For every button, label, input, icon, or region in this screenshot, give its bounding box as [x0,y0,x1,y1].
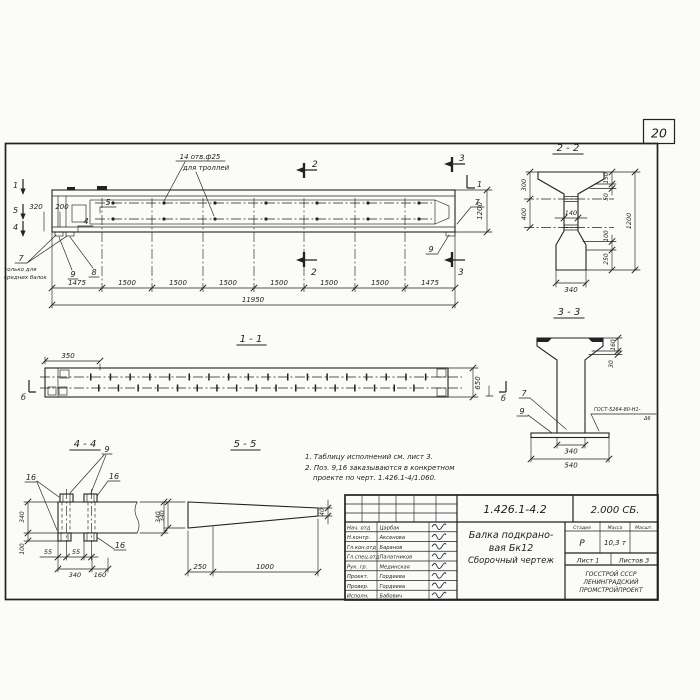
pos-label-16-a: 16 [26,473,36,482]
section-2-2: 2 - 2 300 400 140 150 50 100 250 1200 34… [520,143,640,294]
notes: 1. Таблицу исполнений см. лист 3. 2. Поз… [305,453,455,482]
dim-55-a: 55 [44,548,52,556]
name-7: Бабович [380,594,403,600]
section-1-1: 1 - 1 350 650 б б [21,334,506,403]
dim-55-b: 55 [72,548,80,556]
role-3: Гл.спец.отд [347,555,380,561]
dim-chain-2: 1500 [169,279,187,287]
dim-540-sec33: 540 [564,462,578,470]
pos-7-note-1: только для [4,267,37,273]
pos-label-16-b: 16 [109,472,119,481]
section-1-1-title: 1 - 1 [240,334,263,345]
dim-1200-sec22: 1200 [625,213,633,230]
titleblock-roles: Нач. отд Н.контр. Гл.кон.отд Гл.спец.отд… [347,525,380,599]
weld-spec-line-2: Δ6 [643,416,651,422]
role-5: Проект. [347,574,368,580]
detail-4-4-title: 4 - 4 [74,439,97,450]
view-marker-4-label: 4 [13,223,18,232]
scale-header: Масшт. [635,525,653,531]
name-0: Царбак [380,525,401,531]
org-line-2: ЛЕНИНГРАДСКИЙ [583,579,640,586]
section-3-3-title: 3 - 3 [558,307,581,318]
note-line-2: 2. Поз. 9,16 заказываются в конкретном [305,464,455,472]
drawing-title-3: Сборочный чертеж [468,556,554,566]
name-1: Аксенова [379,535,406,541]
marker-b-right: б [501,394,506,403]
dim-350: 350 [61,352,75,360]
dim-200: 200 [55,203,69,211]
org-line-1: ГОССТРОЙ СССР [585,571,636,578]
title-block: 1.426.1-4.2 2.000 СБ. Нач. отд Н.контр. … [345,495,658,600]
bearing-pad-left-b [66,232,74,236]
section-3-3: 3 - 3 160 30 7 9 ГОСТ-5264-80-Н1- Δ6 340… [517,307,656,470]
section-2-label-top: 2 [312,160,318,170]
stage-value: Р [579,539,585,549]
drawing-title-1: Балка подкрано- [469,530,554,541]
detail-5-5-title: 5 - 5 [234,439,257,450]
pos-label-5: 5 [105,198,110,207]
dim-total: 11950 [242,296,265,304]
dim-chain-3: 1500 [219,279,237,287]
bearing-pad-left-a [55,232,63,236]
pos-label-9-left: 9 [70,270,75,279]
holes-callout: 14 отв.ф25 для троллей [164,153,230,216]
mass-header: Масса [608,525,623,531]
pos-label-8: 8 [91,268,96,277]
trolley-holes [111,201,420,220]
pos-label-9-sec44: 9 [104,445,109,454]
drawing-sheet: 20 14 отв.ф25 для троллей 1 5 [0,0,700,700]
sheet-number: 20 [651,126,667,141]
role-7: Исполн. [347,594,369,600]
dim-340-sec55: 340 [159,510,166,522]
marker-b-left: б [21,393,26,402]
dim-300: 300 [520,179,528,191]
dim-250: 250 [603,253,610,265]
view-marker-5-label: 5 [13,206,18,215]
dim-340-bottom-sec44: 340 [69,571,81,579]
dim-100-sec44: 100 [19,543,26,555]
doc-number: 1.426.1-4.2 [483,503,546,516]
dim-100: 100 [603,230,610,242]
dim-chain-4: 1500 [270,279,288,287]
drawing-title-2: вая Бк12 [489,543,534,554]
bearing-pad-right [446,232,455,236]
pos-label-9-sec33: 9 [519,407,524,416]
name-4: Мединская [380,564,410,570]
view-marker-1-label: 1 [13,181,18,190]
sheets-label: Листов 3 [618,557,649,565]
note-line-1: 1. Таблицу исполнений см. лист 3. [305,453,433,461]
dim-1200-main: 1200 [476,202,484,220]
left-view-markers: 1 5 4 [13,179,26,237]
pos-label-9-right: 9 [428,245,433,254]
dim-340-sec33: 340 [564,448,578,456]
titleblock-names: Царбак Аксенова Баранов Палатников Медин… [379,525,413,599]
role-0: Нач. отд [347,525,371,531]
dim-250-sec55: 250 [193,563,207,571]
role-6: Провер. [347,584,369,590]
holes-callout-text-1: 14 отв.ф25 [180,153,221,161]
detail-4-4: 4 - 4 9 16 16 16 340 100 55 55 340 160 [19,439,168,579]
dim-height-1200: 1200 [455,187,492,235]
section-2-2-title: 2 - 2 [557,143,580,154]
dim-160-sec44: 160 [94,571,106,579]
holes-callout-text-2: для троллей [182,164,230,172]
pos-label-7-left: 7 [18,254,24,263]
dim-140: 140 [565,209,577,217]
base-plate [531,433,609,438]
doc-code: 2.000 СБ. [591,505,640,516]
pos-label-4: 4 [83,217,88,226]
role-2: Гл.кон.отд [347,545,376,551]
weld-spec-line-1: ГОСТ-5264-80-Н1- [594,407,641,413]
name-3: Палатников [380,555,413,561]
role-1: Н.контр. [347,535,370,541]
view-1-label-right: 1 [477,180,482,189]
section-3-label-top: 3 [459,154,465,164]
dim-chain-1: 1500 [118,279,136,287]
view-marker-1-right: 1 [467,175,482,189]
dim-160-sec33: 160 [610,339,617,351]
dim-320: 320 [29,203,43,211]
section-3-label-bottom: 3 [458,268,464,278]
pos-7-note-2: средних балок [4,275,48,281]
dim-340-sec22: 340 [564,286,578,294]
dim-chain-7: 1475 [421,279,439,287]
main-elevation-view: 14 отв.ф25 для троллей 1 5 4 320 200 5 4 [4,153,492,308]
mass-value: 10,3 т [604,539,627,547]
role-4: Рук. гр. [347,564,367,570]
dim-chain-6: 1500 [371,279,389,287]
name-2: Баранов [380,545,403,551]
dim-chain: 1475 1500 1500 1500 1500 1500 1500 1475 … [49,232,458,308]
name-5: Гордеева [380,574,406,580]
pos-label-16-c: 16 [115,541,125,550]
dim-40-sec55: 40 [319,508,326,516]
note-line-3: проекте по черт. 1.426.1-4/1.060. [313,474,436,482]
dim-chain-0: 1475 [68,279,86,287]
dim-30-sec33: 30 [608,360,615,368]
name-6: Гордеева [380,584,406,590]
section-2-label-bottom: 2 [311,268,317,278]
sheet-label: Лист 1 [576,557,600,565]
dim-650: 650 [474,376,482,390]
stage-header: Стадия [573,525,591,531]
dim-1000-sec55: 1000 [256,563,274,571]
dim-150: 150 [603,172,610,184]
dim-340-left-sec44: 340 [19,511,26,523]
org-line-3: ПРОМСТРОЙПРОЕКТ [579,587,644,594]
dim-50: 50 [603,193,610,201]
dim-400: 400 [520,208,528,220]
dim-chain-5: 1500 [320,279,338,287]
pos-label-7-sec33: 7 [521,389,527,398]
pos-7-left-note: 7 только для средних балок [4,235,67,281]
